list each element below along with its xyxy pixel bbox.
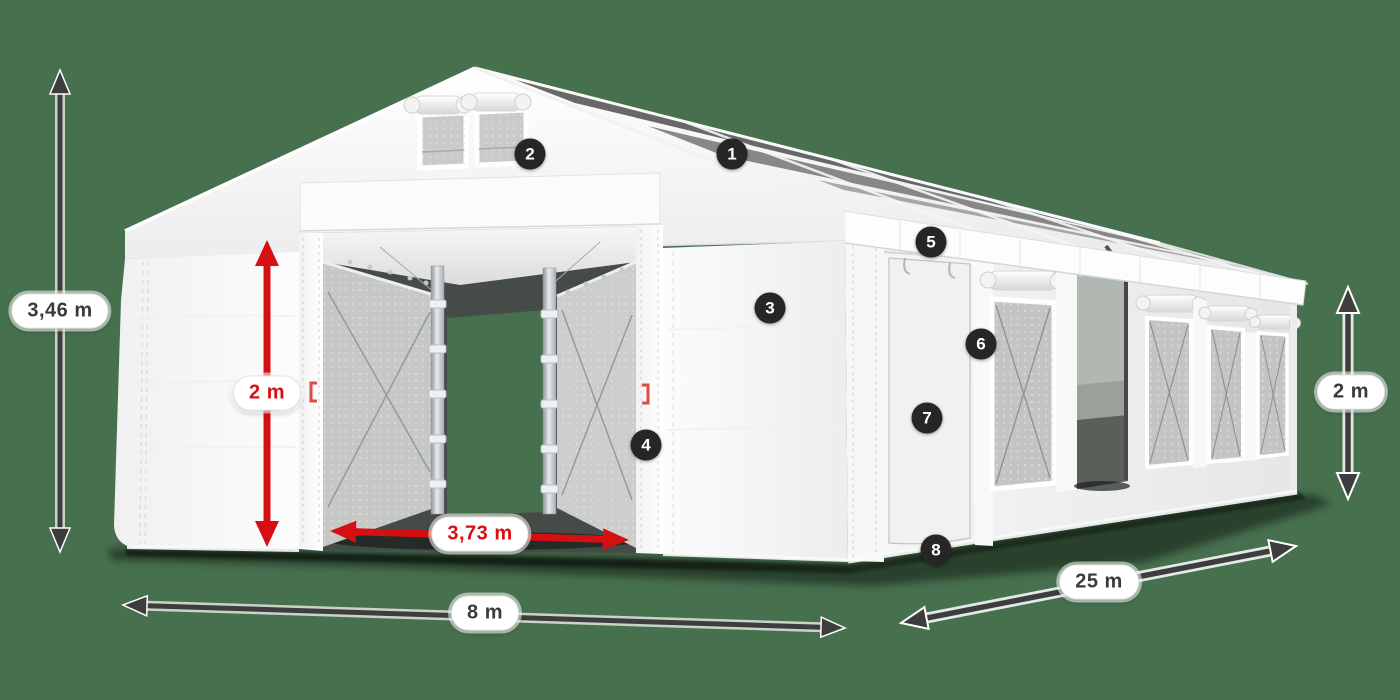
dimension-label-total-height: 3,46 m xyxy=(11,294,108,329)
entrance-header xyxy=(300,173,660,233)
dimension-label-tent-length: 25 m xyxy=(1059,565,1139,600)
dimension-label-tent-width: 8 m xyxy=(451,596,519,631)
dimension-label-entrance-height: 2 m xyxy=(233,376,301,411)
interior-mesh-right xyxy=(557,262,636,548)
marker-2[interactable]: 2 xyxy=(515,139,546,170)
marker-4[interactable]: 4 xyxy=(631,430,662,461)
window-roll-cover xyxy=(988,271,1058,290)
window-roll-cover xyxy=(1143,295,1199,312)
dimension-label-side-height: 2 m xyxy=(1317,375,1385,410)
frame-pole xyxy=(541,268,558,514)
marker-1[interactable]: 1 xyxy=(717,139,748,170)
dimension-label-entrance-width: 3,73 m xyxy=(431,517,528,552)
vent-windows xyxy=(404,93,531,168)
window-roll-cover xyxy=(1205,306,1251,321)
side-opening xyxy=(1074,246,1130,491)
side-window xyxy=(980,271,1066,489)
tent-illustration xyxy=(0,0,1400,700)
see-through-gap xyxy=(447,310,545,516)
side-door xyxy=(884,252,975,544)
tent-diagram: 3,46 m 2 m 3,73 m 8 m 25 m 2 m 1 2 3 4 5… xyxy=(0,0,1400,700)
marker-5[interactable]: 5 xyxy=(916,227,947,258)
marker-6[interactable]: 6 xyxy=(966,329,997,360)
frame-pole xyxy=(429,266,446,514)
front-entrance xyxy=(299,173,663,554)
marker-3[interactable]: 3 xyxy=(755,293,786,324)
vent-roll-cover xyxy=(470,93,522,111)
marker-8[interactable]: 8 xyxy=(921,535,952,566)
marker-7[interactable]: 7 xyxy=(912,403,943,434)
corner-post xyxy=(845,240,884,562)
interior-mesh-left xyxy=(323,262,434,547)
